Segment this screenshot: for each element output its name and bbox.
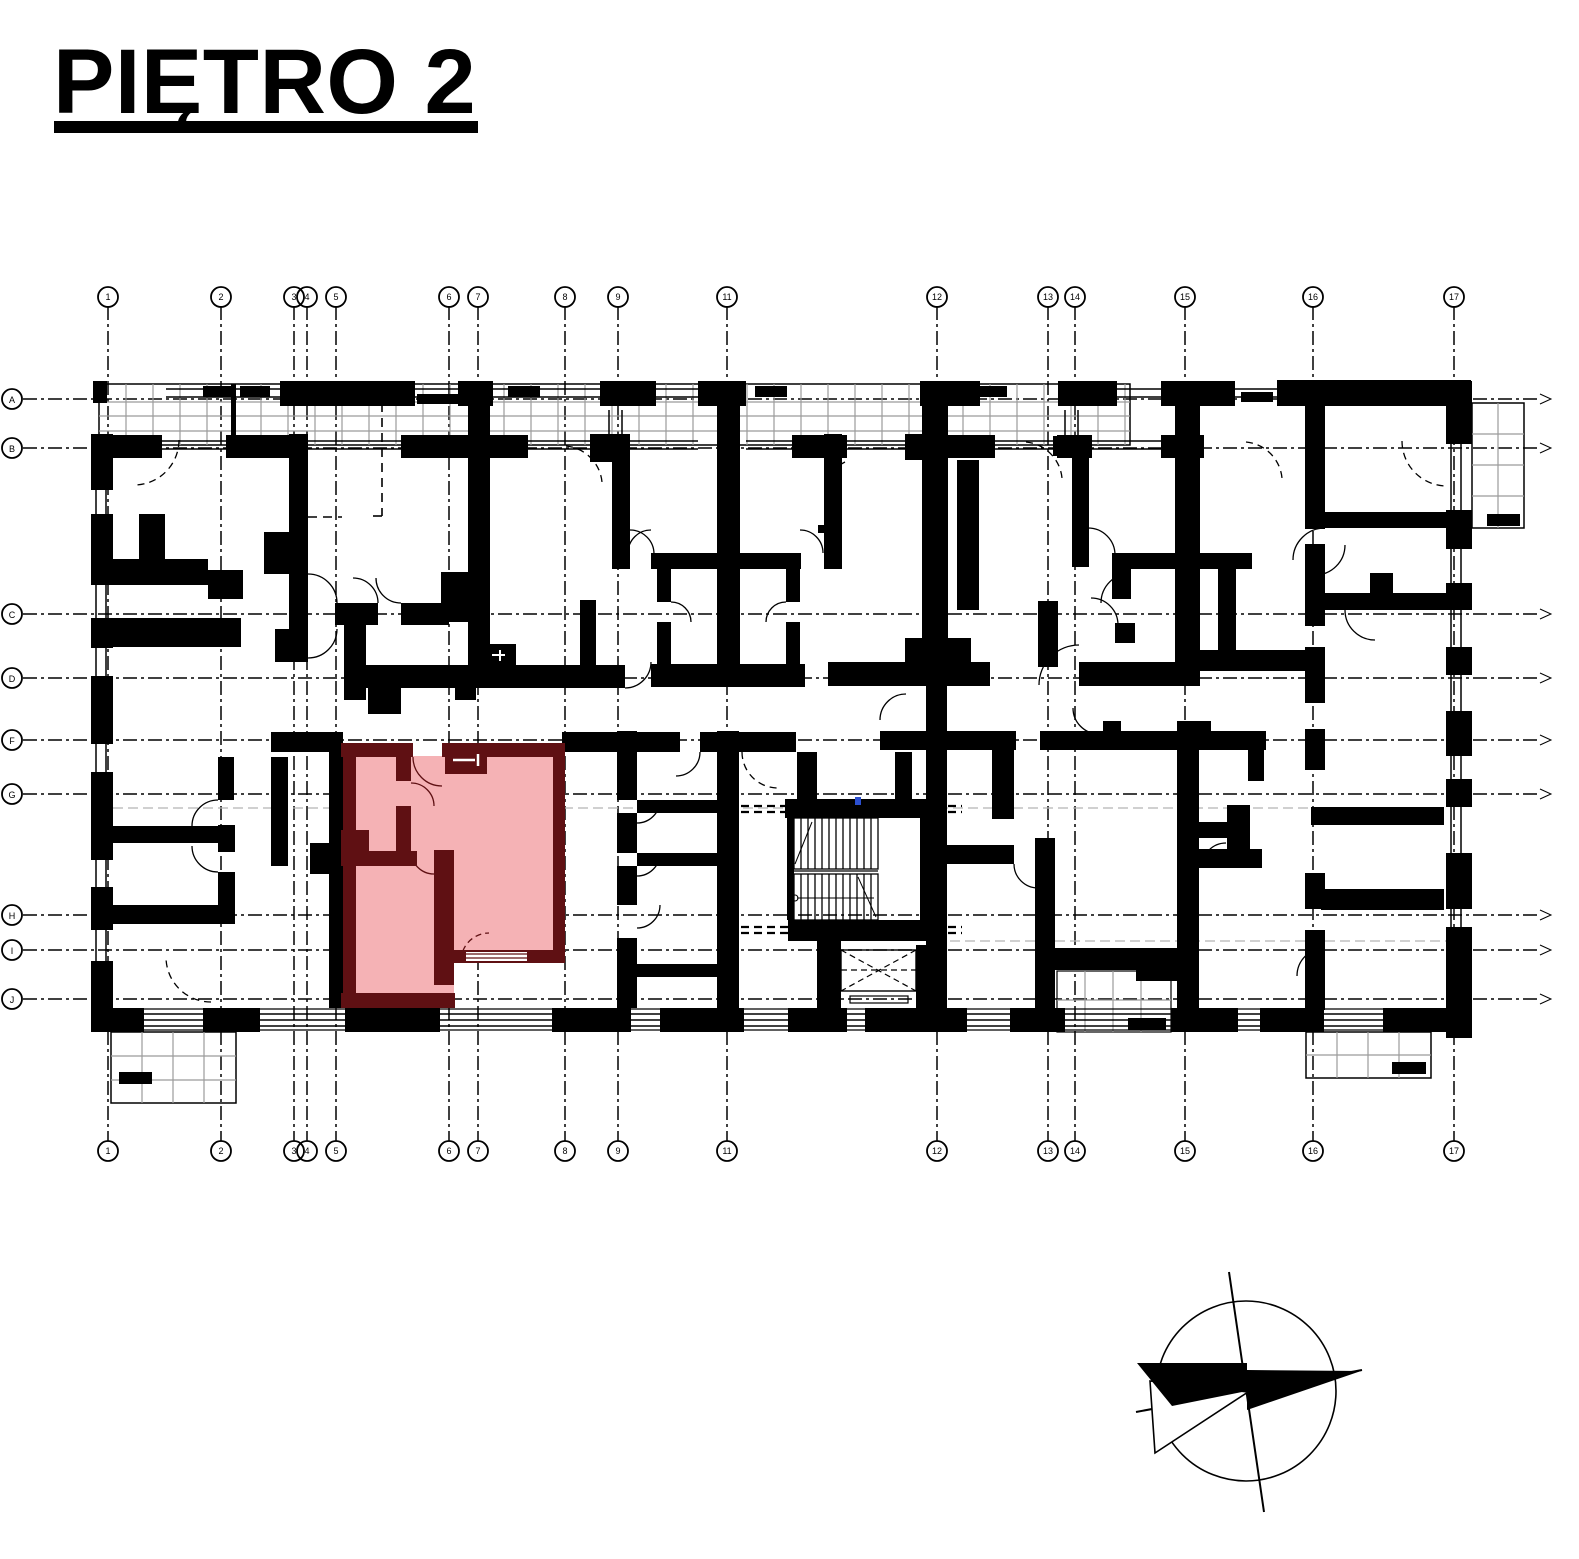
svg-text:12: 12: [932, 1146, 942, 1156]
svg-text:16: 16: [1308, 292, 1318, 302]
svg-text:2: 2: [218, 1146, 223, 1156]
svg-text:13: 13: [1043, 1146, 1053, 1156]
svg-text:5: 5: [333, 292, 338, 302]
svg-text:7: 7: [475, 292, 480, 302]
svg-text:11: 11: [722, 292, 731, 302]
svg-text:3: 3: [291, 292, 296, 302]
svg-text:13: 13: [1043, 292, 1053, 302]
svg-text:F: F: [9, 736, 15, 746]
svg-text:15: 15: [1180, 292, 1190, 302]
svg-text:12: 12: [932, 292, 942, 302]
svg-text:8: 8: [562, 1146, 567, 1156]
svg-text:16: 16: [1308, 1146, 1318, 1156]
svg-text:1: 1: [105, 1146, 110, 1156]
svg-text:1: 1: [105, 292, 110, 302]
svg-text:5: 5: [333, 1146, 338, 1156]
svg-text:A: A: [9, 395, 15, 405]
svg-text:H: H: [9, 911, 16, 921]
svg-text:6: 6: [446, 1146, 451, 1156]
svg-text:4: 4: [304, 1146, 309, 1156]
svg-text:9: 9: [615, 292, 620, 302]
svg-text:14: 14: [1070, 292, 1080, 302]
svg-text:6: 6: [446, 292, 451, 302]
svg-text:8: 8: [562, 292, 567, 302]
svg-text:14: 14: [1070, 1146, 1080, 1156]
svg-text:PIĘTRO 2: PIĘTRO 2: [53, 31, 476, 133]
svg-text:I: I: [11, 946, 14, 956]
svg-text:15: 15: [1180, 1146, 1190, 1156]
svg-text:9: 9: [615, 1146, 620, 1156]
svg-text:17: 17: [1449, 1146, 1459, 1156]
svg-text:C: C: [9, 610, 16, 620]
svg-text:4: 4: [304, 292, 309, 302]
svg-text:7: 7: [475, 1146, 480, 1156]
svg-text:D: D: [9, 674, 16, 684]
svg-text:J: J: [10, 995, 15, 1005]
svg-text:11: 11: [722, 1146, 731, 1156]
svg-text:G: G: [8, 790, 15, 800]
svg-text:B: B: [9, 444, 15, 454]
svg-text:3: 3: [291, 1146, 296, 1156]
svg-text:2: 2: [218, 292, 223, 302]
svg-text:17: 17: [1449, 292, 1459, 302]
